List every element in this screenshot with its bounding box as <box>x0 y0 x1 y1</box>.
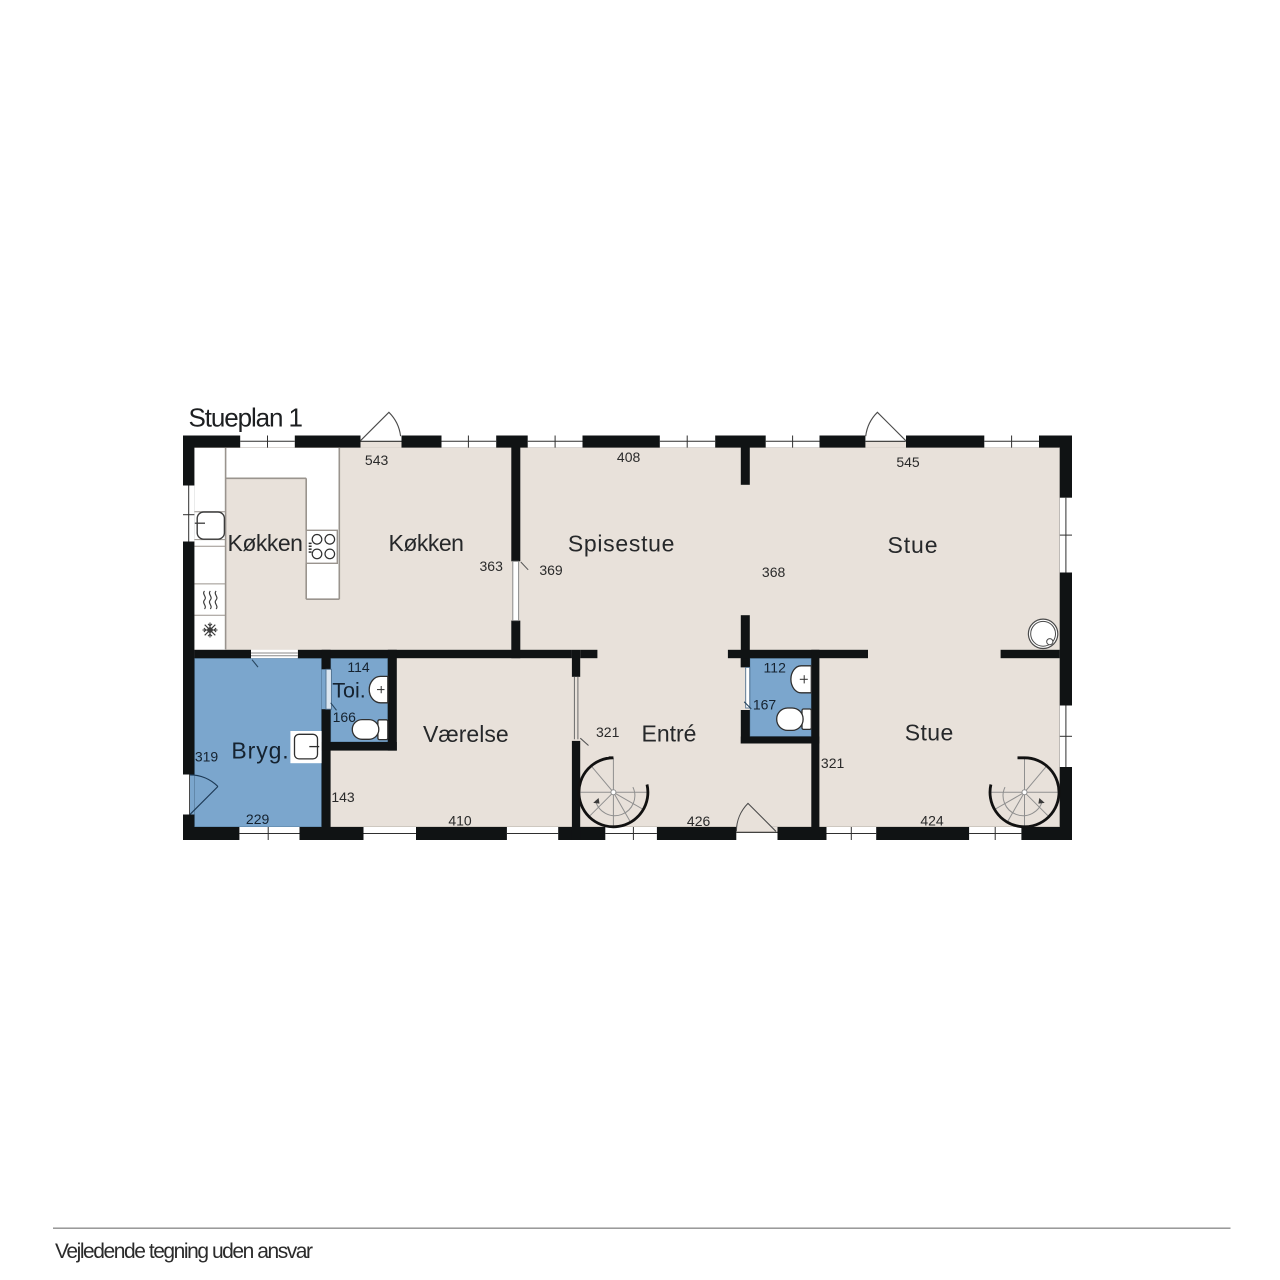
svg-text:321: 321 <box>596 724 620 740</box>
svg-text:321: 321 <box>821 755 845 771</box>
svg-text:Bryg.: Bryg. <box>231 738 289 764</box>
svg-text:543: 543 <box>365 452 389 468</box>
svg-text:363: 363 <box>480 558 504 574</box>
svg-text:368: 368 <box>762 564 786 580</box>
svg-text:Stue: Stue <box>905 719 954 745</box>
svg-text:229: 229 <box>246 811 270 827</box>
svg-text:Køkken: Køkken <box>389 530 464 556</box>
svg-text:Værelse: Værelse <box>423 721 509 747</box>
svg-text:545: 545 <box>896 454 920 470</box>
svg-text:410: 410 <box>448 813 472 829</box>
svg-text:424: 424 <box>920 813 944 829</box>
svg-text:Entré: Entré <box>642 721 697 747</box>
svg-text:319: 319 <box>195 749 219 765</box>
svg-text:114: 114 <box>347 659 370 675</box>
svg-text:369: 369 <box>539 562 563 578</box>
svg-text:Stue: Stue <box>888 532 939 558</box>
svg-text:Toi.: Toi. <box>332 679 365 703</box>
svg-text:112: 112 <box>764 659 787 675</box>
svg-text:Vejledende tegning uden ansvar: Vejledende tegning uden ansvar <box>55 1240 313 1263</box>
svg-text:166: 166 <box>333 709 357 725</box>
svg-text:Stueplan 1: Stueplan 1 <box>189 403 303 433</box>
svg-text:167: 167 <box>753 697 777 713</box>
svg-text:Spisestue: Spisestue <box>568 531 675 557</box>
svg-text:426: 426 <box>687 813 711 829</box>
svg-text:408: 408 <box>617 449 641 465</box>
svg-text:Køkken: Køkken <box>228 530 303 556</box>
svg-text:143: 143 <box>331 789 355 805</box>
